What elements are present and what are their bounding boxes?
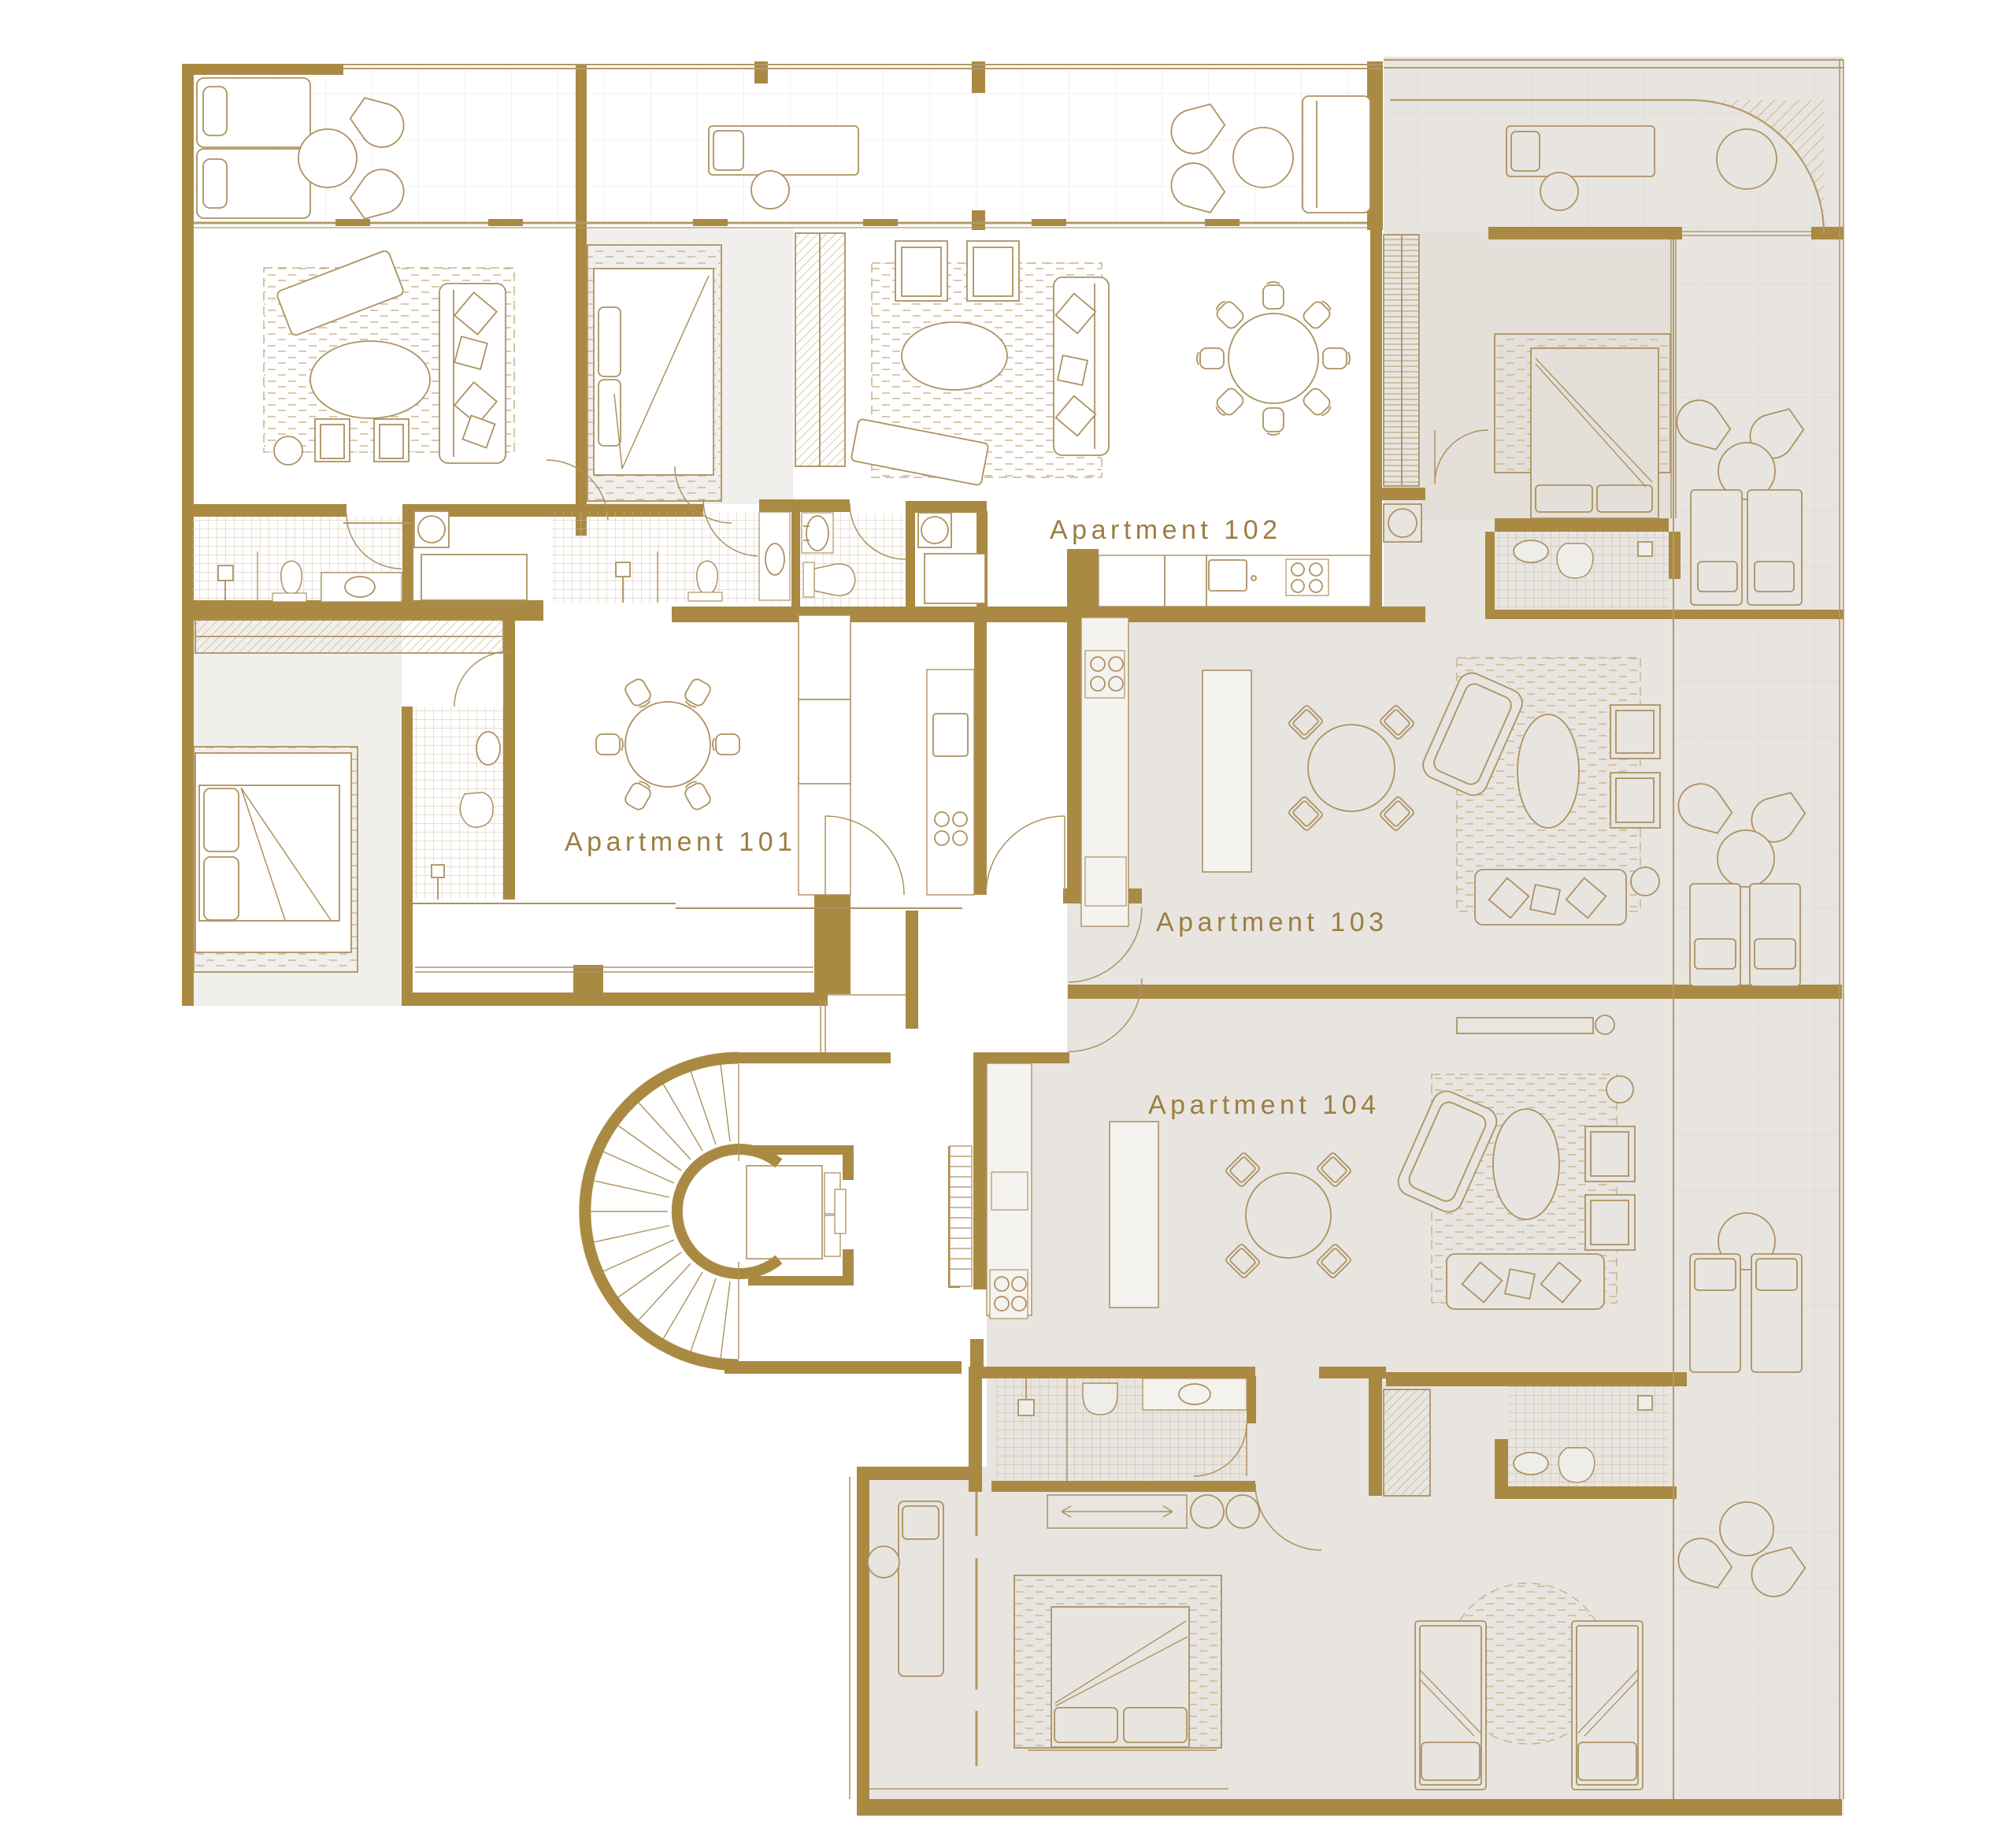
svg-text:Apartment 103: Apartment 103 bbox=[1156, 907, 1388, 937]
svg-text:Apartment 102: Apartment 102 bbox=[1050, 515, 1282, 545]
svg-text:Apartment 104: Apartment 104 bbox=[1148, 1090, 1380, 1120]
svg-text:Apartment 101: Apartment 101 bbox=[565, 827, 797, 857]
